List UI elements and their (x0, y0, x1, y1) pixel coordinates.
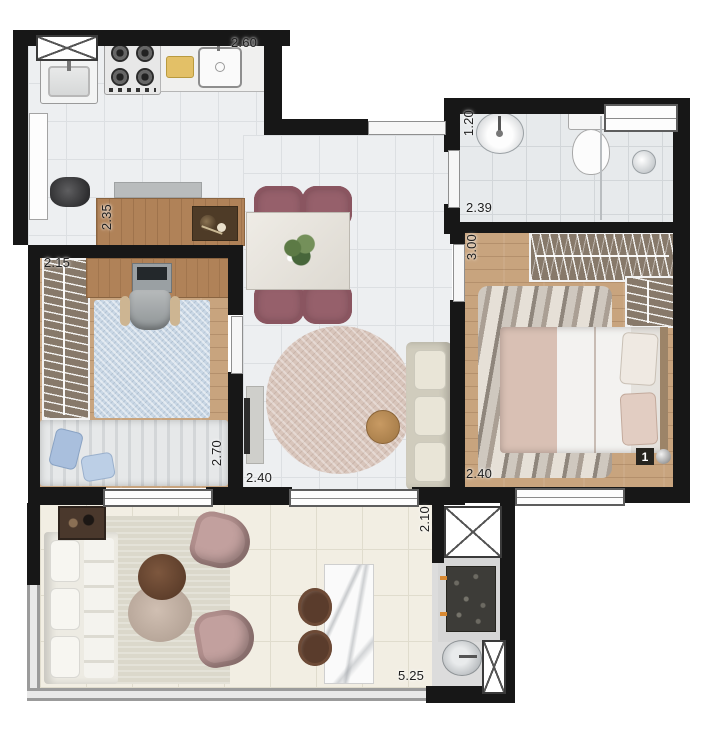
balcony-rail (27, 688, 433, 701)
living-rug (266, 326, 414, 474)
decor-sphere-icon (656, 449, 671, 464)
bathroom-sink (476, 112, 524, 154)
dim-kitchen-top: 2.60 (231, 35, 257, 50)
table-plant (278, 230, 320, 270)
kitchen-duct-shaft (36, 35, 98, 61)
service-sink (442, 640, 482, 676)
wall (444, 98, 460, 152)
bedroom2-closet (42, 258, 90, 420)
dim-living-width: 2.40 (246, 470, 272, 485)
wall (28, 245, 40, 490)
laundry-tank (40, 58, 98, 104)
grill-handle (440, 576, 447, 580)
bedroom1-window (515, 488, 625, 506)
dim-bedroom2-depth: 2.70 (209, 440, 224, 466)
trash-bin (50, 177, 90, 207)
bedroom2-bed (40, 420, 228, 486)
refrigerator (29, 113, 48, 220)
dim-bathroom-length: 2.39 (466, 200, 492, 215)
laptop (132, 263, 172, 293)
wall (460, 222, 673, 233)
dim-bedroom1-width: 2.40 (466, 466, 492, 481)
floor-plan: 1 (0, 0, 716, 731)
desk-chair (120, 290, 180, 336)
bedroom1-closet-side (625, 276, 675, 328)
entry-door (368, 121, 446, 135)
balcony-art (58, 506, 106, 540)
dim-bedroom1-depth: 3.00 (464, 234, 479, 260)
balcony-coffee-table (138, 554, 186, 600)
kitchen-island (96, 198, 245, 246)
dim-bedroom2-width: 2.15 (44, 255, 70, 270)
shower-divider (600, 116, 602, 220)
bar-stool (298, 588, 332, 626)
tv (244, 398, 250, 454)
shower-drain (632, 150, 656, 174)
dim-kitchen-counter: 2.35 (99, 204, 114, 230)
stove (104, 38, 161, 95)
wall (13, 30, 28, 245)
wall (228, 372, 243, 490)
kitchen-sink (198, 47, 242, 88)
barbecue-grill (446, 566, 496, 632)
dim-balcony-width: 5.25 (398, 668, 424, 683)
service-shaft (444, 506, 502, 558)
bathroom-door (448, 150, 460, 208)
bedroom1-closet-top (529, 232, 675, 282)
bedroom1-bed (500, 327, 668, 453)
wall (228, 245, 243, 315)
service-hatch (482, 640, 506, 694)
unit-number: 1 (642, 450, 649, 464)
wall (673, 98, 690, 503)
wall (264, 119, 368, 135)
dim-bathroom-width: 1.20 (461, 110, 476, 136)
balcony-sofa (44, 532, 118, 684)
bedroom2-window (103, 489, 213, 507)
wall (206, 487, 292, 505)
living-sofa (406, 342, 452, 490)
dim-balcony-depth: 2.10 (417, 506, 432, 532)
bedroom2-door (231, 316, 243, 374)
grill-handle (440, 612, 447, 616)
sliding-glass-door (289, 489, 419, 507)
balcony-bar-table (324, 564, 374, 684)
wall (432, 503, 444, 563)
cutting-board (166, 56, 194, 78)
bar-stool (298, 630, 332, 666)
unit-number-badge: 1 (636, 448, 654, 465)
balcony-side-rail (27, 585, 40, 700)
wall (450, 300, 465, 490)
kitchen-mat (114, 182, 202, 198)
wall (27, 503, 40, 585)
bathroom-window (604, 104, 678, 132)
side-table (366, 410, 400, 444)
wall (450, 222, 465, 244)
